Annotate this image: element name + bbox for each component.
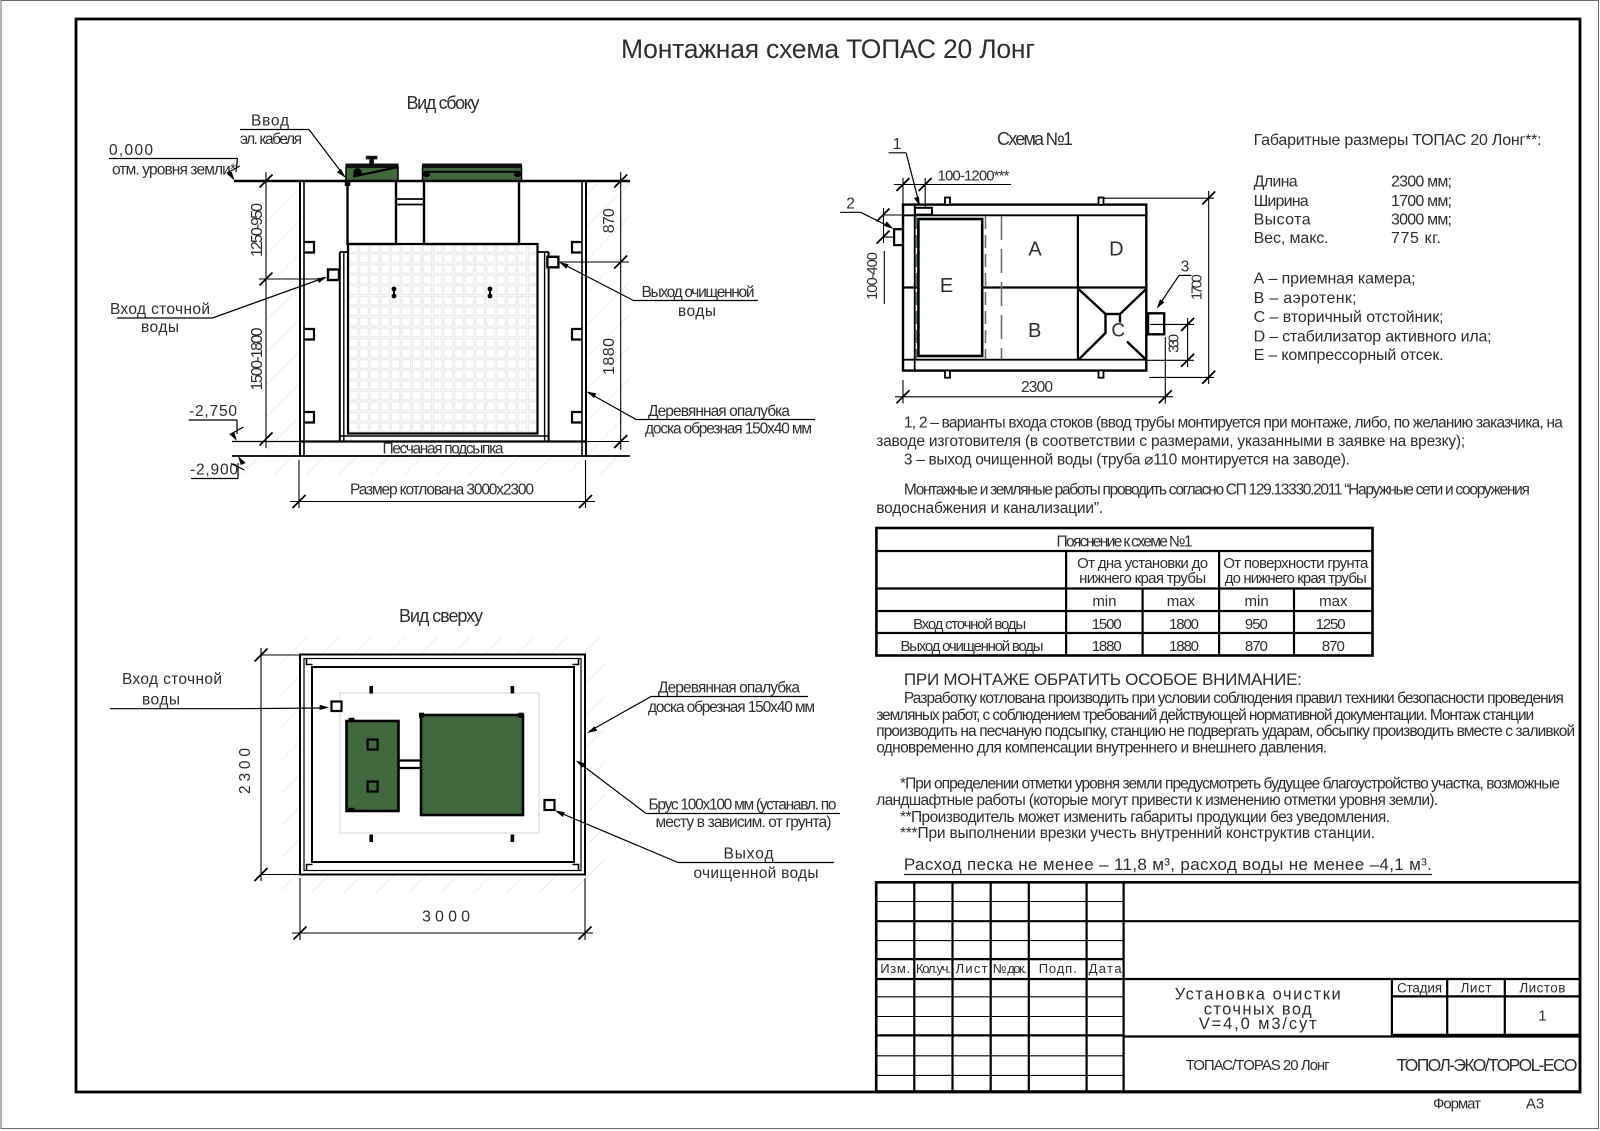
svg-text:100-400: 100-400 xyxy=(864,252,881,300)
svg-text:А3: А3 xyxy=(1526,1096,1544,1113)
svg-text:А – приемная камера;: А – приемная камера; xyxy=(1254,270,1416,287)
svg-text:С – вторичный отстойник;: С – вторичный отстойник; xyxy=(1254,309,1444,326)
svg-text:отм. уровня земли*: отм. уровня земли* xyxy=(112,162,236,179)
svg-text:доска обрезная 150х40 мм: доска обрезная 150х40 мм xyxy=(645,421,812,438)
svg-text:В – аэротенк;: В – аэротенк; xyxy=(1254,290,1357,307)
svg-text:3 – выход очищенной воды (труб: 3 – выход очищенной воды (труба ⌀110 мон… xyxy=(904,452,1350,469)
svg-text:Стадия: Стадия xyxy=(1397,981,1442,996)
svg-text:Разработку котлована производи: Разработку котлована производить при усл… xyxy=(904,690,1564,707)
svg-text:1250: 1250 xyxy=(1316,616,1346,633)
svg-text:Вес, макс.: Вес, макс. xyxy=(1254,230,1329,247)
svg-text:2300 мм;: 2300 мм; xyxy=(1391,174,1452,191)
svg-text:**Производитель может изменить: **Производитель может изменить габариты … xyxy=(900,809,1390,826)
svg-text:870: 870 xyxy=(1245,638,1268,655)
svg-text:ТОПОЛ-ЭКО/TOPOL-ECO: ТОПОЛ-ЭКО/TOPOL-ECO xyxy=(1397,1055,1578,1075)
svg-text:Кол.уч.: Кол.уч. xyxy=(916,961,951,976)
svg-text:заводе изготовителя (в соответ: заводе изготовителя (в соответствии с ра… xyxy=(876,433,1465,450)
svg-text:1: 1 xyxy=(1538,1008,1546,1025)
svg-text:1700: 1700 xyxy=(1189,274,1206,300)
svg-text:эл. кабеля: эл. кабеля xyxy=(240,131,302,148)
svg-text:Дата: Дата xyxy=(1089,961,1123,976)
svg-text:1880: 1880 xyxy=(601,338,618,375)
svg-text:D – стабилизатор активного ила: D – стабилизатор активного ила; xyxy=(1254,329,1492,346)
svg-text:Деревянная опалубка: Деревянная опалубка xyxy=(658,680,800,697)
svg-text:1800: 1800 xyxy=(1169,616,1199,633)
svg-text:Высота: Высота xyxy=(1254,212,1311,229)
svg-text:min: min xyxy=(1245,593,1269,610)
svg-text:одновременно для компенсации в: одновременно для компенсации внутреннего… xyxy=(876,740,1327,757)
svg-text:max: max xyxy=(1167,593,1196,610)
svg-text:Выход очищенной: Выход очищенной xyxy=(642,284,755,301)
svg-text:1: 1 xyxy=(893,136,902,153)
svg-text:***При выполнении врезки учест: ***При выполнении врезки учесть внутренн… xyxy=(900,825,1375,842)
svg-text:Выход очищенной воды: Выход очищенной воды xyxy=(901,638,1044,655)
svg-text:1250-950: 1250-950 xyxy=(249,203,266,257)
svg-text:-2,750: -2,750 xyxy=(189,403,237,420)
svg-text:Брус 100х100 мм (устанавл. по: Брус 100х100 мм (устанавл. по xyxy=(649,797,837,814)
svg-text:Монтажные и земляные работы пр: Монтажные и земляные работы проводить со… xyxy=(904,482,1530,499)
svg-text:Пояснение к схеме №1: Пояснение к схеме №1 xyxy=(1057,534,1193,551)
svg-text:воды: воды xyxy=(141,319,179,336)
svg-text:Листов: Листов xyxy=(1519,981,1565,996)
svg-text:Лист: Лист xyxy=(1461,981,1492,996)
svg-text:1500-1800: 1500-1800 xyxy=(249,327,266,390)
svg-text:870: 870 xyxy=(601,208,618,233)
svg-text:ландшафтные работы (которые мо: ландшафтные работы (которые могут привес… xyxy=(876,792,1438,809)
svg-text:Песчаная подсыпка: Песчаная подсыпка xyxy=(383,441,504,458)
svg-text:Выход: Выход xyxy=(724,846,774,863)
svg-text:Схема №1: Схема №1 xyxy=(997,129,1073,149)
svg-text:Вид сверху: Вид сверху xyxy=(399,606,483,626)
svg-text:земляных работ, с соблюдением: земляных работ, с соблюдением требований… xyxy=(876,707,1534,724)
svg-text:Монтажная схема ТОПАС 20 Лонг: Монтажная схема ТОПАС 20 Лонг xyxy=(621,34,1035,64)
svg-text:2: 2 xyxy=(846,196,855,213)
svg-text:Изм.: Изм. xyxy=(880,961,910,976)
svg-text:очищенной воды: очищенной воды xyxy=(694,865,819,882)
svg-text:870: 870 xyxy=(1322,638,1345,655)
svg-text:Ввод: Ввод xyxy=(251,113,289,130)
svg-text:1, 2 – варианты входа стоков: 1, 2 – варианты входа стоков (ввод трубы… xyxy=(904,415,1563,432)
svg-text:1880: 1880 xyxy=(1092,638,1122,655)
svg-text:775 кг.: 775 кг. xyxy=(1391,230,1441,247)
svg-text:A: A xyxy=(1028,239,1042,261)
svg-text:3000 мм;: 3000 мм; xyxy=(1391,212,1452,229)
svg-text:100-1200***: 100-1200*** xyxy=(938,168,1010,185)
svg-text:Расход песка не менее – 11,8 м: Расход песка не менее – 11,8 м³, расход … xyxy=(904,855,1432,874)
svg-text:Габаритные размеры ТОПАС 20 Ло: Габаритные размеры ТОПАС 20 Лонг**: xyxy=(1254,132,1542,149)
svg-text:Вход сточной: Вход сточной xyxy=(122,671,222,688)
svg-text:до нижнего края трубы: до нижнего края трубы xyxy=(1225,570,1367,587)
svg-text:Е – компрессорный отсек.: Е – компрессорный отсек. xyxy=(1254,347,1444,364)
svg-text:ТОПАС/TOPAS 20 Лонг: ТОПАС/TOPAS 20 Лонг xyxy=(1186,1057,1331,1074)
svg-text:330: 330 xyxy=(1166,334,1183,353)
svg-text:воды: воды xyxy=(142,692,180,709)
svg-text:1880: 1880 xyxy=(1169,638,1199,655)
svg-text:0,000: 0,000 xyxy=(109,142,153,159)
svg-text:V=4,0 м3/сут: V=4,0 м3/сут xyxy=(1199,1015,1317,1033)
svg-text:3: 3 xyxy=(1181,259,1190,276)
svg-text:№ док.: № док. xyxy=(993,961,1027,976)
svg-text:Длина: Длина xyxy=(1254,174,1298,191)
svg-text:D: D xyxy=(1109,239,1123,261)
svg-text:max: max xyxy=(1319,593,1348,610)
svg-text:Вид сбоку: Вид сбоку xyxy=(407,93,480,113)
svg-text:*При определении отметки уровн: *При определении отметки уровня земли пр… xyxy=(900,776,1560,793)
svg-text:доска обрезная 150х40 мм: доска обрезная 150х40 мм xyxy=(648,699,815,716)
svg-text:Ширина: Ширина xyxy=(1254,193,1309,210)
svg-text:нижнего края трубы: нижнего края трубы xyxy=(1079,570,1206,587)
svg-text:min: min xyxy=(1092,593,1116,610)
svg-text:водоснабжения и канализации”.: водоснабжения и канализации”. xyxy=(876,500,1103,517)
svg-text:1700 мм;: 1700 мм; xyxy=(1391,193,1452,210)
svg-text:Подп.: Подп. xyxy=(1039,961,1077,976)
svg-text:Лист: Лист xyxy=(956,961,988,976)
svg-text:C: C xyxy=(1111,320,1125,341)
svg-text:производить на песчаную подсып: производить на песчаную подсыпку, станци… xyxy=(876,723,1575,740)
svg-text:воды: воды xyxy=(678,303,716,320)
svg-text:2300: 2300 xyxy=(1021,379,1053,396)
svg-text:Вход сточной: Вход сточной xyxy=(110,301,210,318)
svg-text:Формат: Формат xyxy=(1433,1096,1481,1113)
svg-text:B: B xyxy=(1028,320,1041,342)
svg-text:Вход сточной воды: Вход сточной воды xyxy=(913,616,1026,633)
svg-text:месту в зависим. от грунта): месту в зависим. от грунта) xyxy=(656,814,832,831)
svg-text:E: E xyxy=(940,275,953,297)
svg-text:ПРИ МОНТАЖЕ ОБРАТИТЬ ОСОБОЕ ВН: ПРИ МОНТАЖЕ ОБРАТИТЬ ОСОБОЕ ВНИМАНИЕ: xyxy=(904,670,1302,689)
svg-text:Размер котлована 3000х2300: Размер котлована 3000х2300 xyxy=(350,482,534,499)
svg-text:Деревянная опалубка: Деревянная опалубка xyxy=(648,403,790,420)
svg-text:1500: 1500 xyxy=(1092,616,1122,633)
svg-text:950: 950 xyxy=(1245,616,1268,633)
